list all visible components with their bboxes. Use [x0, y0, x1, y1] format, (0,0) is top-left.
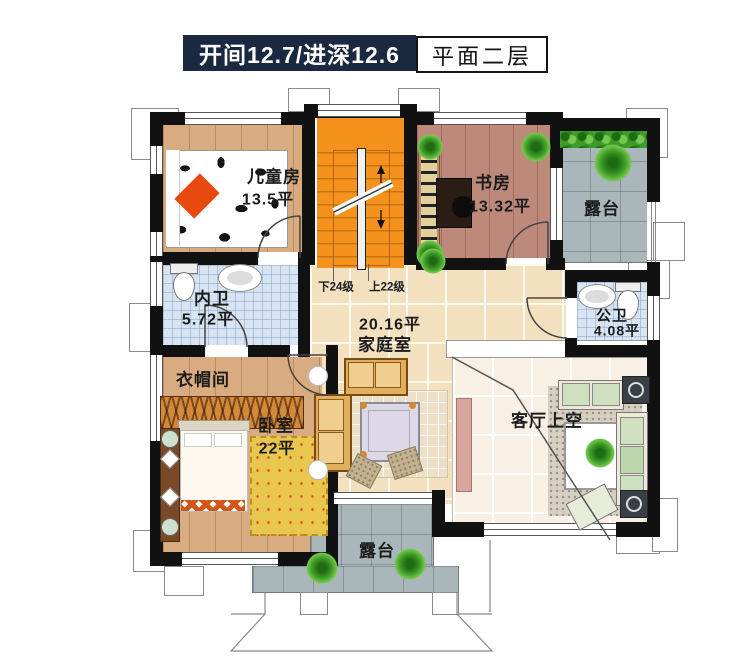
inner-bath-label: 内卫 — [194, 289, 230, 310]
study-label: 书房 — [475, 173, 511, 194]
sofa-cushion-green — [562, 383, 590, 406]
sofa-cushion — [375, 362, 401, 388]
family-room-area: 20.16平 — [359, 315, 421, 336]
window — [185, 112, 281, 125]
window — [647, 296, 660, 340]
staircase-handrail — [357, 148, 366, 270]
corner-table-ring — [626, 496, 642, 512]
terrace-right-parapet — [651, 202, 656, 262]
bed-blanket-trim — [181, 500, 245, 511]
wall — [546, 258, 565, 270]
terrace-parapet-post — [300, 592, 328, 615]
sofa-cushion — [348, 362, 374, 388]
wall — [550, 118, 660, 131]
study-area: 13.32平 — [469, 197, 531, 218]
cloak-room-label: 衣帽间 — [176, 370, 230, 391]
terrace-bottom-label: 露台 — [359, 541, 395, 562]
floor-banner: 平面二层 — [416, 36, 548, 73]
sofa-cushion-green — [620, 417, 644, 445]
wall — [647, 340, 660, 537]
wall — [432, 490, 445, 537]
living-void-label: 客厅上空 — [511, 411, 583, 432]
wall — [444, 522, 484, 537]
window — [150, 232, 163, 256]
family-room-label: 家庭室 — [358, 335, 412, 356]
window — [150, 146, 163, 174]
wall — [150, 552, 182, 566]
side-table — [308, 460, 328, 480]
living-sideboard — [456, 398, 472, 492]
bed-pillow — [184, 433, 212, 447]
coffee-table-inner — [368, 410, 410, 452]
plant — [420, 248, 446, 274]
corner-table-ring — [628, 382, 644, 398]
dimensions-label: 开间12.7/进深12.6 — [199, 36, 400, 70]
bed-pillow — [214, 433, 242, 447]
hall-corridor-floor — [406, 264, 566, 342]
window — [318, 104, 400, 117]
inner-bath-area: 5.72平 — [182, 310, 234, 331]
wall — [298, 252, 310, 357]
pillar — [653, 222, 685, 261]
wall — [647, 118, 660, 202]
side-dish — [161, 518, 179, 536]
bedroom-area: 22平 — [259, 439, 296, 460]
terrace-sliding-door — [334, 492, 432, 504]
table-corner — [360, 402, 367, 409]
wall — [565, 270, 577, 298]
plant — [521, 132, 551, 162]
window — [434, 112, 526, 125]
public-bath-area: 4.08平 — [594, 321, 640, 342]
window — [182, 552, 278, 565]
side-table — [308, 366, 328, 386]
window — [150, 262, 163, 306]
dimensions-banner: 开间12.7/进深12.6 — [183, 35, 416, 71]
wall — [302, 112, 315, 265]
floor-label: 平面二层 — [432, 39, 532, 71]
terrace-bottom-floor-lower — [252, 566, 459, 593]
plant — [394, 548, 426, 580]
table-plant — [585, 438, 615, 468]
wall — [248, 345, 290, 357]
side-dish — [161, 430, 179, 448]
palm-plant — [594, 144, 632, 182]
children-room-area: 13.5平 — [242, 190, 294, 211]
stairs-down-label: 下24级 — [318, 278, 354, 299]
floor-plan-page: 开间12.7/进深12.6 平面二层 — [0, 0, 750, 660]
sofa-cushion-green — [620, 446, 644, 474]
sofa-cushion-green — [592, 383, 620, 406]
plant — [417, 134, 443, 160]
bedroom-label: 卧室 — [258, 416, 294, 437]
table-corner — [409, 402, 416, 409]
sofa-cushion — [318, 399, 344, 431]
sofa-cushion — [318, 432, 344, 464]
wall — [647, 262, 660, 296]
window — [550, 168, 563, 240]
terrace-parapet-post — [432, 592, 459, 615]
plant — [306, 552, 338, 584]
wall — [616, 522, 660, 537]
pillar — [164, 566, 204, 596]
stairs-up-label: 上22级 — [369, 278, 405, 299]
wall — [404, 104, 417, 265]
wall — [565, 270, 660, 282]
window — [484, 523, 616, 536]
children-room-label: 儿童房 — [247, 167, 301, 188]
wall — [565, 345, 660, 357]
terrace-right-label: 露台 — [584, 199, 620, 220]
